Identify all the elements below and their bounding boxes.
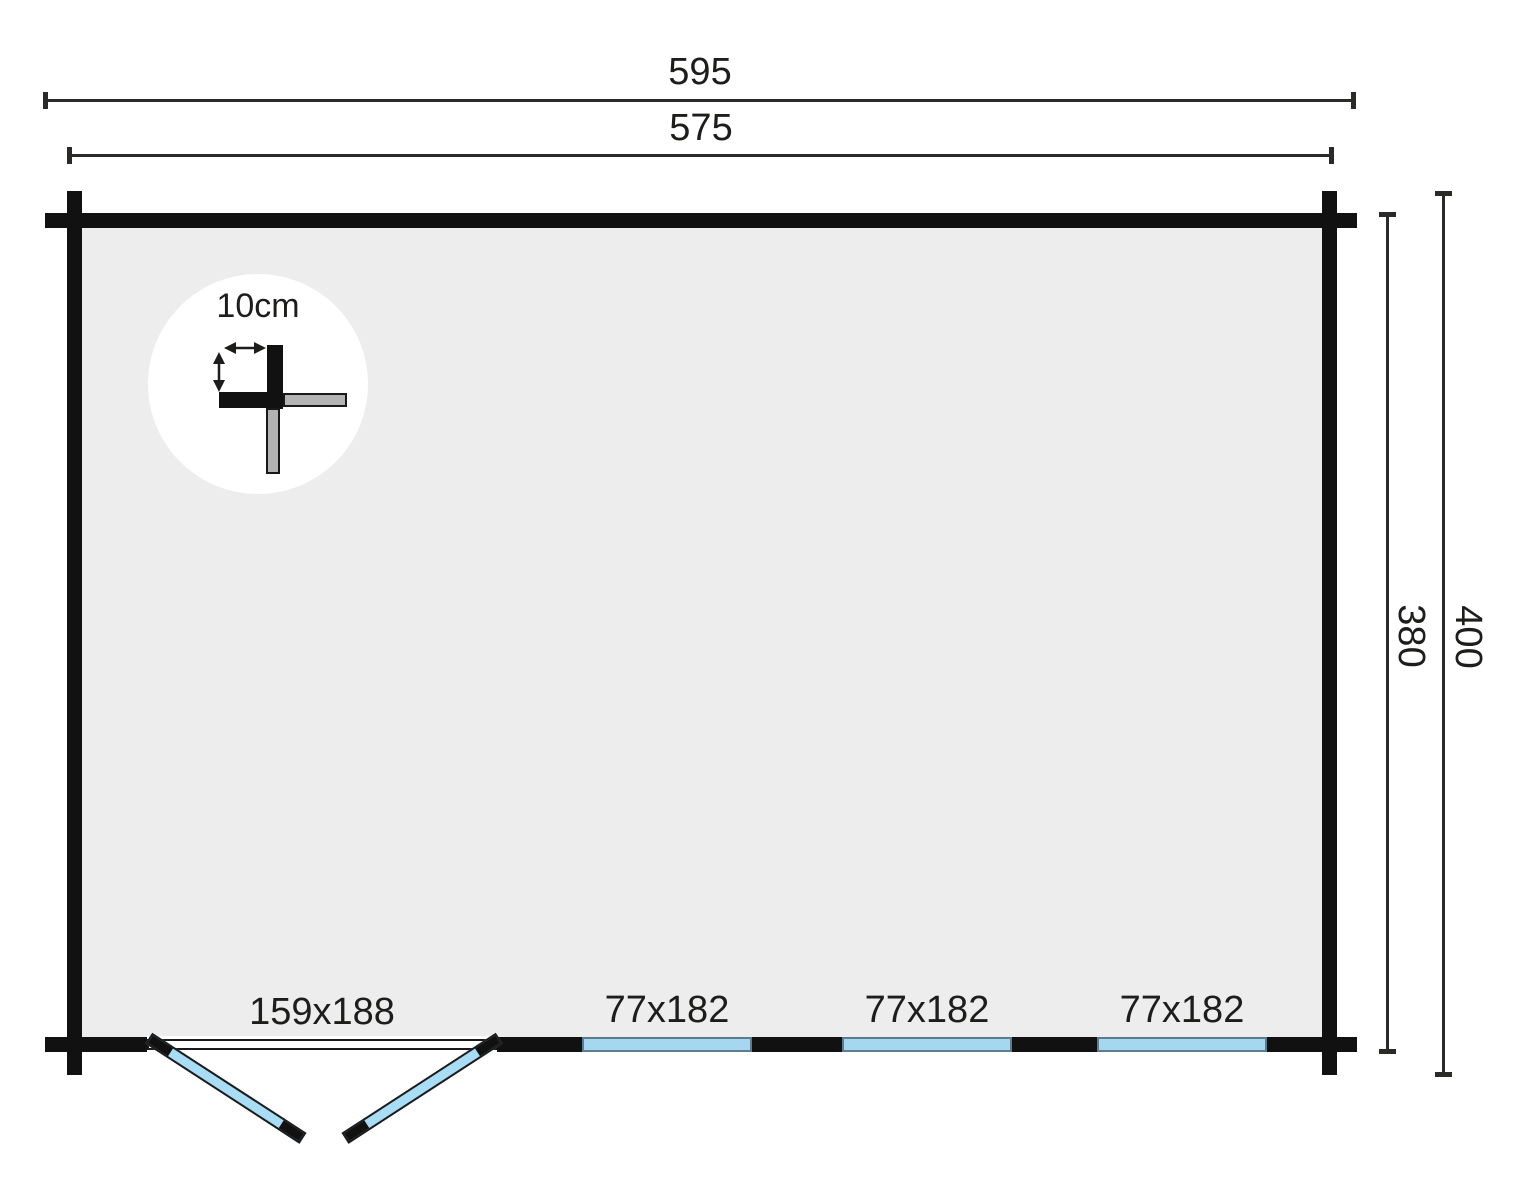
- dim-tick-top-inner-left: [67, 147, 72, 164]
- dim-tick-side-outer-top: [1435, 191, 1452, 196]
- dim-line-side-outer: [1442, 193, 1445, 1075]
- floorplan-canvas: 595 575 380 400 10cm 159x188: [0, 0, 1536, 1193]
- dim-line-top-inner: [69, 154, 1333, 157]
- dim-label-side-outer: 400: [1448, 577, 1488, 697]
- window-2: [842, 1037, 1012, 1052]
- wall-top: [45, 213, 1357, 228]
- door-size-label: 159x188: [147, 992, 497, 1032]
- window-3-label: 77x182: [1097, 990, 1267, 1030]
- wall-left: [67, 191, 82, 1075]
- dim-tick-top-inner-right: [1329, 147, 1334, 164]
- double-arrow-icon: [205, 336, 275, 400]
- dim-tick-side-inner-top: [1379, 212, 1396, 217]
- dim-line-side-inner: [1386, 214, 1389, 1052]
- dim-tick-top-outer-left: [43, 92, 48, 109]
- dim-tick-side-inner-bottom: [1379, 1049, 1396, 1054]
- dim-line-top-outer: [45, 99, 1355, 102]
- dim-tick-top-outer-right: [1351, 92, 1356, 109]
- detail-log-gray-horizontal: [283, 393, 347, 407]
- dim-label-side-inner: 380: [1391, 576, 1431, 696]
- detail-log-gray-vertical: [266, 408, 280, 474]
- window-1: [582, 1037, 752, 1052]
- wall-thickness-label: 10cm: [148, 287, 368, 325]
- window-2-label: 77x182: [842, 990, 1012, 1030]
- dim-tick-side-outer-bottom: [1435, 1072, 1452, 1077]
- dim-label-top-outer: 595: [45, 52, 1355, 92]
- window-3: [1097, 1037, 1267, 1052]
- door-threshold: [147, 1039, 497, 1050]
- door-edge-cap: [279, 1120, 304, 1141]
- wall-right: [1322, 191, 1337, 1075]
- dim-label-top-inner: 575: [69, 108, 1333, 148]
- window-1-label: 77x182: [582, 990, 752, 1030]
- door-edge-cap: [344, 1120, 369, 1141]
